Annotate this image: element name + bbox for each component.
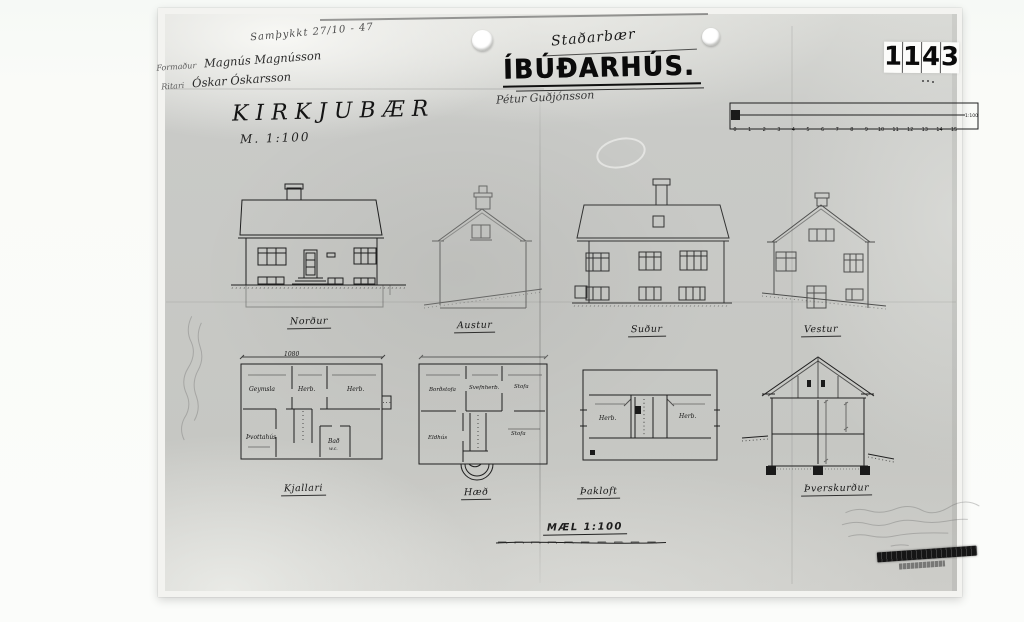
- elevation-label-north: Norður: [287, 316, 331, 330]
- wall: [440, 242, 526, 308]
- main-floor-plan-drawing: Borðstofa Svefnherb. Stofa Eldhús Stofa: [416, 351, 552, 488]
- scanned-drawing-page: Samþykkt 27/10 - 47 FormaðurMagnús Magnú…: [0, 0, 1024, 622]
- ruler-numbers: 0 1 2 3 4 5 6 7 8 9 10 11 12 13 14 15: [733, 127, 957, 133]
- walls: [772, 398, 864, 466]
- entry-steps: [461, 464, 493, 480]
- center-fold-crease: [539, 95, 541, 583]
- plan-label-main-floor: Hæð: [461, 487, 492, 501]
- cross-section-drawing: [742, 346, 894, 486]
- scale-ruler: 0 1 2 3 4 5 6 7 8 9 10 11 12 13 14 15 1:…: [729, 100, 981, 134]
- svg-text:3: 3: [777, 127, 780, 133]
- dimension-line: [240, 355, 385, 359]
- chimney-mark: [590, 450, 595, 455]
- ink-specks: [922, 80, 924, 82]
- svg-text:14: 14: [936, 127, 942, 133]
- roof: [577, 205, 729, 241]
- punch-hole-icon: [472, 30, 493, 51]
- official-role-label: Formaður: [156, 61, 196, 73]
- site-name-handwritten: KIRKJUBÆR: [232, 96, 436, 126]
- elevation-label-east: Austur: [454, 320, 496, 334]
- svg-text:0: 0: [733, 127, 736, 133]
- ground-line: [572, 303, 732, 306]
- staircase: [635, 397, 653, 438]
- ground-line: [762, 293, 886, 309]
- graphic-scale-bar: [494, 536, 670, 550]
- room-labels: Herb. Herb.: [598, 413, 696, 422]
- svg-text:15: 15: [951, 127, 957, 133]
- windows-basement: [575, 286, 705, 300]
- windows: [776, 252, 863, 272]
- svg-text:Herb.: Herb.: [598, 415, 616, 422]
- svg-text:11: 11: [892, 127, 898, 133]
- roof-structure: [762, 357, 874, 398]
- west-elevation-drawing: [762, 192, 886, 320]
- east-elevation-drawing: [424, 184, 544, 324]
- punch-hole-icon: [702, 28, 720, 46]
- sheet-number-digit: 1: [902, 42, 921, 73]
- svg-text:w.c.: w.c.: [329, 447, 338, 452]
- elevation-label-west: Vestur: [801, 324, 841, 338]
- ruler-backing: [730, 103, 978, 129]
- svg-text:8: 8: [850, 127, 853, 133]
- svg-text:Borðstofa: Borðstofa: [428, 386, 456, 393]
- svg-text:6: 6: [821, 127, 824, 133]
- room-labels: Borðstofa Svefnherb. Stofa Eldhús Stofa: [427, 384, 529, 441]
- drawing-title: ÍBÚÐARHÚS.: [503, 50, 696, 85]
- chimney: [815, 193, 829, 206]
- elevation-label-south: Suður: [628, 324, 666, 338]
- attic-window: [809, 229, 834, 241]
- corner-pencil-note: [837, 495, 1009, 556]
- svg-text:Stofa: Stofa: [511, 431, 526, 437]
- svg-text:7: 7: [836, 127, 839, 133]
- attic-plan-drawing: Herb. Herb.: [579, 366, 721, 466]
- entrance-door: [292, 250, 329, 284]
- dimension-lines: [824, 400, 848, 464]
- svg-text:Svefnherb.: Svefnherb.: [469, 385, 500, 391]
- roof: [238, 200, 384, 238]
- ground-line: [424, 289, 542, 308]
- wall-openings: [419, 364, 547, 464]
- svg-text:5: 5: [806, 127, 809, 133]
- plan-label-attic: Þakloft: [577, 486, 621, 500]
- svg-text:9: 9: [865, 127, 868, 133]
- windows-upper: [586, 251, 707, 271]
- ruler-ticks: [731, 110, 965, 120]
- attic-window: [470, 225, 492, 240]
- ruler-scale-label: 1:100: [965, 113, 978, 119]
- room-labels: Geymsla Herb. Herb. Þvottahús Bað w.c.: [245, 386, 364, 452]
- svg-text:13: 13: [922, 127, 928, 133]
- sheet-number-digit: 4: [921, 42, 940, 73]
- margin-pencil-note: [154, 311, 214, 464]
- svg-text:Bað: Bað: [327, 438, 340, 445]
- svg-text:Geymsla: Geymsla: [249, 386, 275, 393]
- svg-text:Eldhús: Eldhús: [427, 434, 447, 441]
- south-elevation-drawing: [572, 176, 734, 312]
- svg-text:1: 1: [748, 127, 751, 133]
- svg-text:Herb.: Herb.: [678, 413, 696, 420]
- svg-text:10: 10: [878, 127, 884, 133]
- svg-text:Þvottahús: Þvottahús: [245, 434, 276, 441]
- svg-text:2: 2: [763, 127, 766, 133]
- roof-window: [653, 216, 664, 227]
- sheet-number-digit: 3: [940, 42, 959, 73]
- partition-walls: [243, 366, 380, 457]
- roof: [767, 205, 875, 242]
- svg-text:Stofa: Stofa: [514, 384, 529, 390]
- scale-note-handwritten: M. 1:100: [240, 130, 311, 146]
- chimney: [474, 186, 492, 209]
- svg-text:Herb.: Herb.: [346, 386, 364, 393]
- plan-label-basement: Kjallari: [281, 483, 326, 497]
- north-elevation-drawing: [230, 182, 408, 314]
- scale-bar-label: MÆL 1:100: [543, 521, 627, 535]
- sheet-number: 1 1 4 3: [884, 42, 959, 74]
- basement-openings: [807, 286, 863, 308]
- basement-plan-drawing: 1080 Geymsla Herb. Herb.: [232, 351, 394, 479]
- chimney: [653, 179, 670, 205]
- partition-walls: [421, 366, 545, 462]
- outer-walls: [419, 364, 547, 464]
- plan-top-dimension: 1080: [284, 351, 299, 358]
- svg-text:12: 12: [907, 127, 913, 133]
- svg-text:4: 4: [792, 127, 795, 133]
- sheet-number-digit: 1: [884, 42, 902, 73]
- plan-label-cross-section: Þverskurður: [801, 482, 872, 496]
- svg-text:Herb.: Herb.: [297, 386, 315, 393]
- dimension-line: [419, 355, 548, 359]
- chimney: [285, 184, 303, 200]
- official-role-label: Ritari: [161, 81, 185, 92]
- exterior-stair: [382, 396, 391, 409]
